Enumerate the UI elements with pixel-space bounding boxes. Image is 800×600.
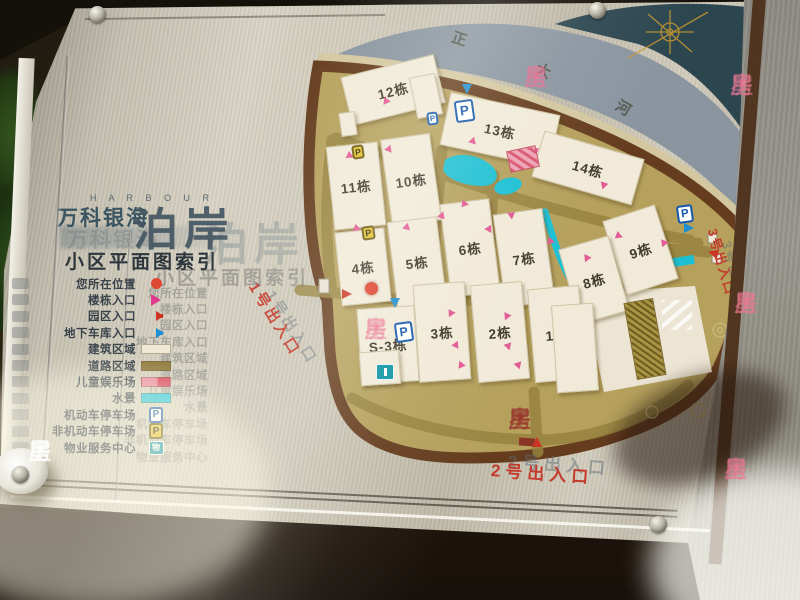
watermark-logo: ✦ — [512, 408, 527, 426]
watermark-logo: ✦ — [734, 74, 749, 92]
watermark-char: 星 — [509, 408, 532, 431]
watermark-char: 房 — [735, 292, 758, 315]
watermark-char: 星 — [525, 66, 548, 89]
watermark-logo: ✦ — [738, 292, 753, 310]
watermark-char: 星 — [725, 458, 748, 481]
watermark-logo: ✦ — [368, 318, 383, 336]
watermark-char: 房 — [509, 408, 532, 431]
watermark-char: 星 — [735, 292, 758, 315]
watermark-char: 星 — [365, 318, 388, 341]
watermark-logo: ✦ — [728, 458, 743, 476]
photo-of-community-map-sign: 12栋13栋14栋11栋10栋4栋5栋6栋7栋9栋8栋S-3栋3栋2栋1栋PPP… — [0, 0, 800, 600]
watermark-char: 星 — [29, 440, 52, 463]
watermark-logo: ✦ — [528, 66, 543, 84]
watermark-char: 房 — [525, 66, 548, 89]
watermark-char: 星 — [731, 74, 754, 97]
watermark-layer: ✦房星✦房星✦房星✦房星✦房星✦房星✦房星 — [0, 0, 800, 600]
watermark-logo: ✦ — [32, 440, 47, 458]
watermark-char: 房 — [29, 440, 52, 463]
watermark-char: 房 — [725, 458, 748, 481]
watermark-char: 房 — [365, 318, 388, 341]
watermark-char: 房 — [731, 74, 754, 97]
